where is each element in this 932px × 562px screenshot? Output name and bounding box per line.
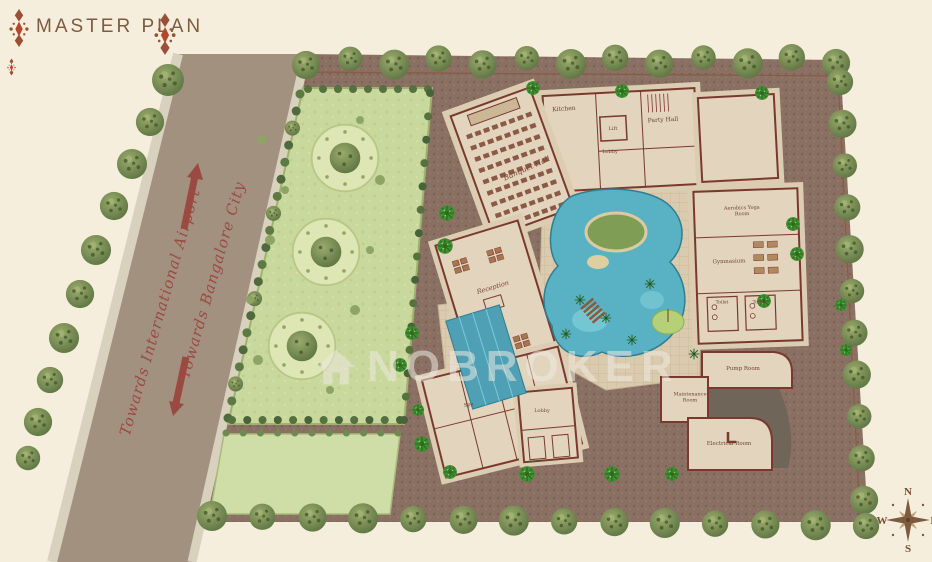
header-ornament-icon [6, 58, 17, 76]
tree-icon [449, 506, 477, 534]
tree-icon [469, 50, 497, 78]
tree-icon [66, 280, 94, 308]
ornamental-tree-icon [526, 81, 540, 95]
ornamental-tree-icon [439, 205, 454, 220]
ornamental-tree-icon [790, 247, 804, 261]
room-label-gymnasium: Gymnasium [712, 258, 745, 265]
tree-icon [836, 235, 864, 263]
palm-icon [645, 279, 655, 289]
tree-icon [379, 50, 409, 80]
tree-icon [733, 48, 763, 78]
ornamental-tree-icon [414, 436, 429, 451]
ornamental-tree-icon [835, 299, 847, 311]
master-plan-canvas: MASTER PLAN Towards International Airpor… [0, 0, 932, 562]
ornamental-tree-icon [443, 465, 457, 479]
palm-icon [601, 313, 611, 323]
ornamental-tree-icon [604, 466, 619, 481]
tree-icon [425, 45, 451, 71]
ornamental-tree-icon [393, 358, 407, 372]
tree-icon [136, 108, 164, 136]
header-ornament-icon [152, 12, 178, 56]
tree-mound-icon [269, 313, 336, 380]
room-label-toilet-1: Toilet [716, 300, 729, 305]
header-ornament-icon [7, 8, 31, 48]
tree-icon [49, 323, 79, 353]
tree-icon [833, 153, 857, 177]
room-label-pump-room: Pump Room [726, 366, 760, 372]
palm-icon [575, 295, 585, 305]
tree-icon [602, 45, 628, 71]
tree-icon [24, 408, 52, 436]
ornamental-tree-icon [665, 467, 679, 481]
tree-icon [600, 508, 628, 536]
tree-icon [848, 445, 874, 471]
ornamental-tree-icon [840, 344, 852, 356]
tree-icon [81, 235, 111, 265]
tree-mound-icon [293, 219, 360, 286]
site-plan-graphic [0, 0, 932, 562]
palm-icon [627, 335, 637, 345]
tree-icon [801, 510, 831, 540]
tree-icon [117, 149, 147, 179]
room-label-toilet-2: Toilet [753, 300, 766, 305]
tree-icon [843, 361, 871, 389]
palm-icon [561, 329, 571, 339]
room-label-lift: Lift [609, 127, 618, 133]
room-label-aerobics: Aerobics Yoga Room [724, 206, 760, 219]
tree-icon [515, 46, 539, 70]
tree-icon [834, 194, 860, 220]
tree-icon [828, 110, 856, 138]
tree-icon [16, 446, 40, 470]
tree-mound-icon [312, 125, 379, 192]
compass: N S W E [874, 484, 932, 556]
ornamental-tree-icon [405, 326, 419, 340]
tree-icon [348, 503, 378, 533]
ornamental-tree-icon [786, 217, 800, 231]
room-label-electrical-room: Electrical Room [707, 441, 752, 447]
palm-icon [689, 349, 699, 359]
tree-icon [152, 64, 184, 96]
room-label-lobby-lower: Lobby [534, 409, 550, 415]
page-title: MASTER PLAN [36, 16, 203, 38]
tree-icon [645, 50, 673, 78]
room-label-lobby-upper: Lobby [602, 150, 618, 156]
tree-icon [779, 44, 805, 70]
compass-north: N [904, 486, 912, 498]
ornamental-tree-icon [412, 404, 424, 416]
tree-icon [847, 404, 871, 428]
tree-icon [37, 367, 63, 393]
tree-icon [292, 51, 320, 79]
room-label-maintenance-room: Maintenance Room [670, 392, 710, 404]
tree-icon [551, 508, 577, 534]
ornamental-tree-icon [437, 238, 452, 253]
tree-icon [691, 45, 715, 69]
tree-icon [338, 47, 362, 71]
compass-south: S [905, 543, 911, 555]
tree-icon [285, 121, 300, 136]
ornamental-tree-icon [755, 86, 769, 100]
tree-icon [751, 510, 779, 538]
tree-icon [400, 506, 426, 532]
tree-icon [197, 501, 227, 531]
tree-icon [100, 192, 128, 220]
tree-icon [228, 376, 243, 391]
tree-icon [556, 49, 586, 79]
tree-icon [827, 69, 853, 95]
tree-icon [499, 506, 529, 536]
ornamental-tree-icon [519, 466, 534, 481]
compass-west: W [877, 515, 888, 527]
tree-icon [702, 511, 728, 537]
tree-icon [266, 206, 281, 221]
tree-icon [841, 320, 867, 346]
tree-icon [650, 508, 680, 538]
tree-icon [249, 504, 275, 530]
ornamental-tree-icon [615, 84, 629, 98]
tree-icon [299, 503, 327, 531]
